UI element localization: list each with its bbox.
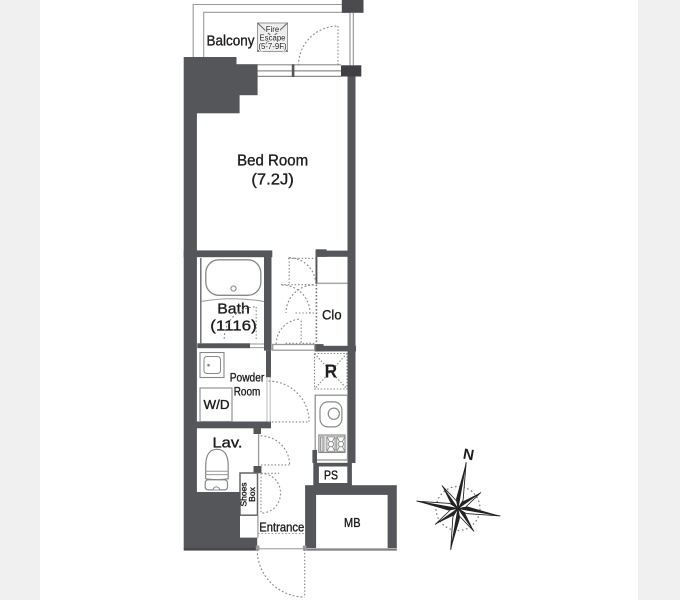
svg-text:Clo: Clo [322,307,342,323]
svg-text:Balcony: Balcony [207,33,255,50]
svg-text:PS: PS [324,469,338,483]
svg-text:R: R [325,362,338,382]
svg-text:Box: Box [247,486,257,501]
svg-text:(5-7-9F): (5-7-9F) [258,42,287,51]
svg-text:MB: MB [344,516,361,530]
svg-text:Entrance: Entrance [259,520,304,535]
svg-text:Bath: Bath [217,301,250,318]
svg-text:W/D: W/D [204,398,230,412]
svg-text:Bed Room: Bed Room [237,153,308,170]
svg-text:Powder: Powder [230,373,265,385]
svg-text:Room: Room [234,387,261,399]
svg-text:(1116): (1116) [210,318,257,335]
svg-text:(7.2J): (7.2J) [251,172,294,189]
svg-text:N: N [462,446,476,465]
